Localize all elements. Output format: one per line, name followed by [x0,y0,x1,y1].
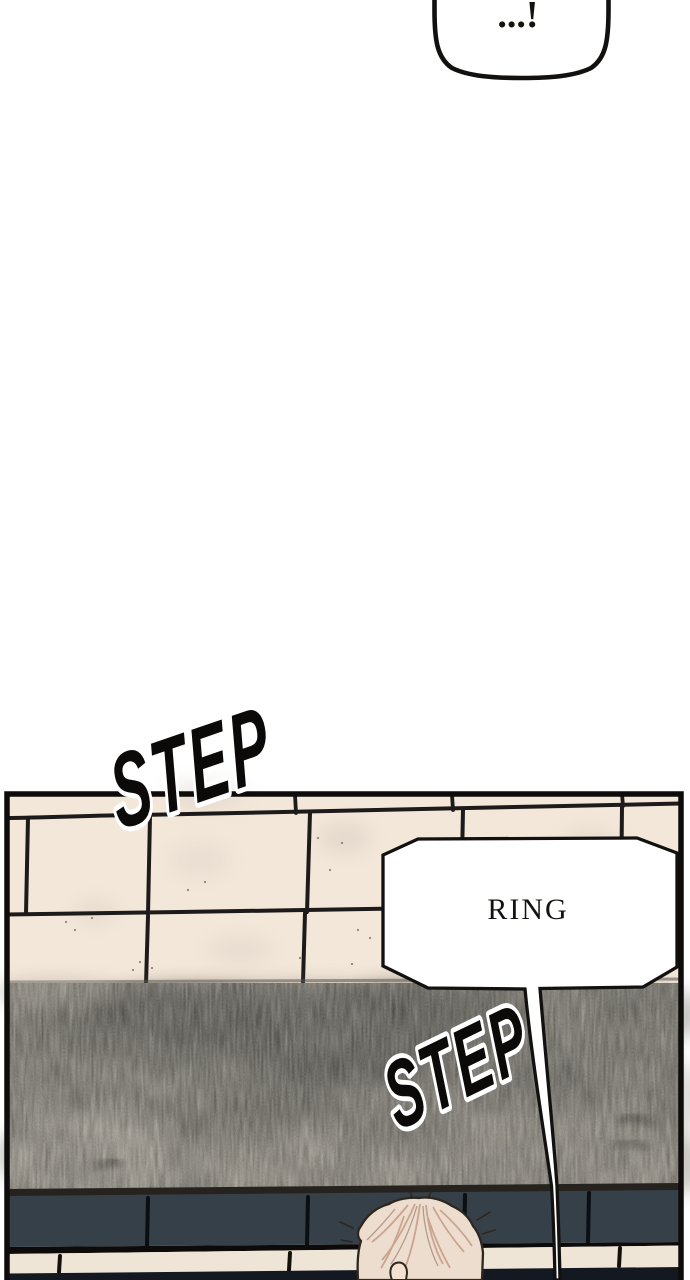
svg-text:RING: RING [487,893,568,926]
svg-text:...!: ...! [497,0,538,36]
